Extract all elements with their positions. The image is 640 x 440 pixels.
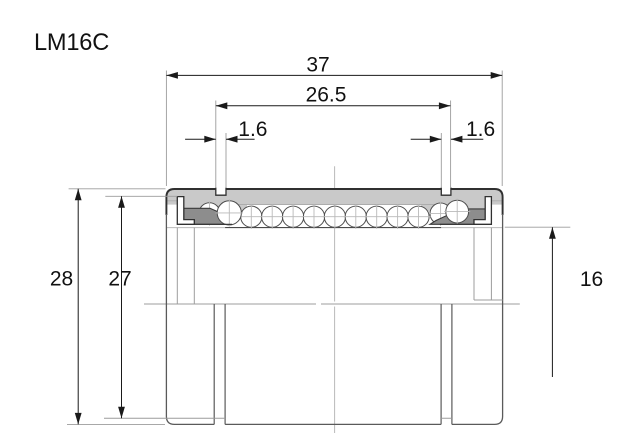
svg-text:16: 16 [580, 268, 603, 291]
svg-text:1.6: 1.6 [466, 118, 495, 141]
svg-text:LM16C: LM16C [34, 30, 109, 56]
svg-text:37: 37 [306, 54, 329, 77]
svg-text:26.5: 26.5 [306, 84, 347, 107]
svg-text:28: 28 [50, 268, 73, 291]
svg-text:27: 27 [108, 268, 131, 291]
svg-text:1.6: 1.6 [238, 118, 267, 141]
